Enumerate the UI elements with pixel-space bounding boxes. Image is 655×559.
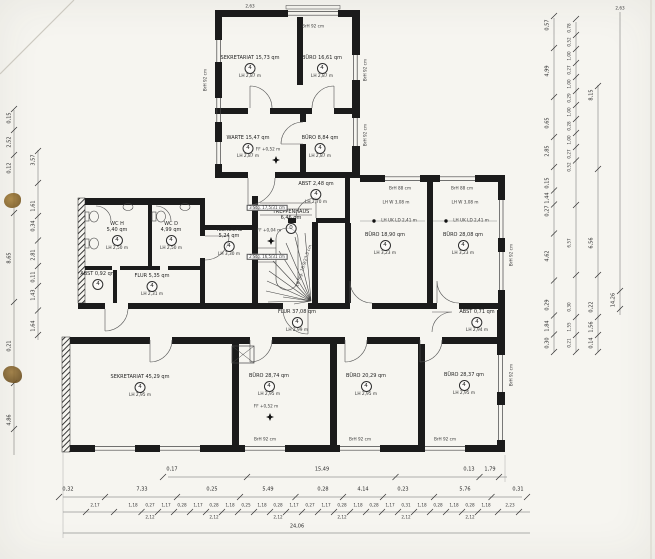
dim-label: 1,55 [568, 322, 573, 331]
storey-number-badge: 4 [92, 279, 103, 290]
room-label: WC D4,99 qm4LH 2,50 m [160, 222, 182, 252]
room-name: BÜRO 16,61 qm [302, 56, 342, 62]
dim-label: 0,52 [568, 37, 573, 46]
dim-label: 2,17 [90, 504, 99, 509]
storey-number-badge: 4 [242, 143, 253, 154]
dim-label: 1,18 [353, 504, 362, 509]
dim-label: 0,28 [273, 504, 282, 509]
room-label: BÜRO 28,74 qm4LH 2,95 m [249, 374, 289, 398]
dim-label: 6,56 [589, 237, 595, 248]
dim-label: 2,81 [31, 249, 37, 260]
storey-number-badge: 4 [166, 235, 177, 246]
dim-label: 2,12 [337, 516, 346, 521]
room-label: BÜRO 16,61 qm4LH 2,87 m [302, 56, 342, 80]
dim-label: 0,12 [7, 162, 13, 173]
dim-label: 3,57 [31, 154, 37, 165]
dim-label: 2,23 [505, 504, 514, 509]
dim-label: 0,28 [177, 504, 186, 509]
dim-label: 1,79 [484, 467, 495, 473]
dim-label: 0,30 [568, 302, 573, 311]
dim-label: 1,84 [545, 320, 551, 331]
dim-label: 0,22 [589, 301, 595, 312]
room-label: BÜRO 18,90 qm4LH 3,23 m [365, 233, 405, 257]
room-label: SEKRETARIAT 45,29 qm4LH 2,95 m [111, 375, 170, 399]
annotation-label: BrH 92 cm [364, 124, 369, 146]
dim-label: 1,18 [417, 504, 426, 509]
dim-label: 1,18 [449, 504, 458, 509]
room-label: ABST 2,48 qm4LH 2,70 m [298, 182, 333, 206]
room-label: TEEKÜCHE5,24 qm4LH 3,30 m [216, 228, 243, 258]
annotation-label: 2 Stg. 16,5/31 cm [247, 254, 288, 260]
clear-height-label: LH 2,50 m [106, 247, 128, 252]
dim-label: 2,12 [273, 516, 282, 521]
clear-height-label: LH 2,99 m [278, 329, 316, 334]
dim-label: 15,49 [315, 467, 329, 473]
room-name: BÜRO 28,74 qm [249, 374, 289, 380]
room-label: WC H5,40 qm4LH 2,50 m [106, 222, 128, 252]
room-name: BÜRO 28,37 qm [444, 373, 484, 379]
annotation-label: BrH 92 cm [434, 438, 456, 443]
dim-label: 0,14 [589, 337, 595, 348]
dim-label: 0,27 [145, 504, 154, 509]
dim-label: 1,00 [568, 51, 573, 60]
storey-number-badge: 4 [316, 63, 327, 74]
storey-number-badge: 4 [471, 317, 482, 328]
clear-height-label: LH 2,95 m [111, 394, 170, 399]
dim-label: 1,00 [568, 107, 573, 116]
room-label: FLUR 5,35 qm4LH 2,31 m [135, 274, 170, 298]
dim-label: 0,17 [166, 467, 177, 473]
room-label: BÜRO 28,08 qm4LH 3,23 m [443, 233, 483, 257]
dim-label: 2,85 [545, 145, 551, 156]
room-name: BÜRO 20,29 qm [346, 374, 386, 380]
room-name: BÜRO 28,08 qm [443, 233, 483, 239]
dim-label: 0,21 [7, 340, 13, 351]
dim-label: 8,65 [7, 252, 13, 263]
storey-number-badge: 4 [292, 317, 303, 328]
storey-number-badge: 4 [457, 240, 468, 251]
dim-label: 1,18 [257, 504, 266, 509]
room-name: SEKRETARIAT 15,73 qm [221, 56, 280, 62]
clear-height-label: LH 2,95 m [346, 393, 386, 398]
dim-label: 0,30 [545, 337, 551, 348]
annotation-label: BrH 92 cm [510, 364, 515, 386]
dim-label: 0,32 [62, 487, 73, 493]
dim-label: 0,65 [545, 117, 551, 128]
clear-height-label: LH 2,87 m [227, 155, 270, 160]
dim-label: 1,17 [385, 504, 394, 509]
room-name: ABST 0,92 qm [80, 272, 115, 278]
dim-label: 1,17 [289, 504, 298, 509]
annotation-label: BrH 92 cm [510, 244, 515, 266]
annotation-label: BrH 92 cm [364, 59, 369, 81]
dim-label: 0,52 [568, 162, 573, 171]
stain-mark [3, 366, 22, 383]
annotation-label: 18 Stg. 16,9/23,5 cm [295, 244, 313, 287]
annotation-label: LH UK LD 2,41 m [381, 219, 417, 224]
dim-label: 1,00 [568, 135, 573, 144]
annotation-label: LH W 3,08 m [451, 201, 478, 206]
dim-label: 0,28 [369, 504, 378, 509]
dim-label: 0,34 [31, 220, 37, 231]
dim-label: 0,28 [433, 504, 442, 509]
annotation-label: FF +0,52 m [256, 148, 280, 153]
annotation-label: BrH 92 cm [204, 69, 209, 91]
annotation-label: FF +0,04 m [257, 229, 281, 234]
storey-number-badge: 4 [458, 380, 469, 391]
clear-height-label: LH 2,87 m [221, 75, 280, 80]
clear-height-label: LH 2,50 m [160, 247, 182, 252]
room-label: FLUR 37,08 qm4LH 2,99 m [278, 310, 316, 334]
dim-label: 4,62 [545, 250, 551, 261]
clear-height-label: LH 2,87 m [302, 75, 342, 80]
dim-label: 1,44 [545, 192, 551, 203]
annotation-label: 2,63 [245, 5, 254, 10]
storey-number-badge: 4 [360, 381, 371, 392]
dim-label: 0,13 [463, 467, 474, 473]
dim-label: 1,17 [161, 504, 170, 509]
dim-label: 0,29 [568, 93, 573, 102]
annotation-label: BrH 92 cm [302, 25, 324, 30]
room-label: BÜRO 8,84 qm4LH 2,87 m [302, 136, 339, 160]
dim-label: 0,28 [337, 504, 346, 509]
dim-label: 0,23 [397, 487, 408, 493]
dim-label: 0,29 [545, 299, 551, 310]
room-name: FLUR 37,08 qm [278, 310, 316, 316]
dim-label: 2,12 [145, 516, 154, 521]
annotation-label: BrH 92 cm [254, 438, 276, 443]
dim-label: 0,27 [568, 149, 573, 158]
dim-label: 8,15 [589, 89, 595, 100]
dim-label: 6,57 [568, 238, 573, 247]
clear-height-label: LH 2,95 m [249, 393, 289, 398]
dim-label: 0,25 [206, 487, 217, 493]
dim-label: 1,43 [31, 289, 37, 300]
dim-label: 4,14 [357, 487, 368, 493]
storey-number-badge: 4 [224, 241, 235, 252]
dim-label: 2,12 [465, 516, 474, 521]
clear-height-label: LH 2,70 m [298, 201, 333, 206]
scanned-floor-plan: SEKRETARIAT 15,73 qm4LH 2,87 mBÜRO 16,61… [0, 0, 655, 559]
annotation-label: LH UK LD 2,41 m [453, 219, 489, 224]
room-label: ABST 0,92 qm4 [80, 272, 115, 291]
stain-mark [4, 193, 21, 208]
dim-label: 0,78 [568, 23, 573, 32]
dim-label: 0,25 [241, 504, 250, 509]
dim-label: 1,17 [321, 504, 330, 509]
dim-label: 1,18 [225, 504, 234, 509]
storey-number-badge: 4 [135, 382, 146, 393]
dim-label: 0,28 [209, 504, 218, 509]
dim-label: 0,57 [545, 19, 551, 30]
dim-label: 0,27 [568, 65, 573, 74]
room-area: 5,24 qm [216, 234, 243, 240]
room-name: BÜRO 8,84 qm [302, 136, 339, 142]
dim-label: 0,15 [545, 177, 551, 188]
dim-label: 1,56 [589, 321, 595, 332]
storey-number-badge: 0 [285, 223, 296, 234]
room-label: BÜRO 28,37 qm4LH 2,95 m [444, 373, 484, 397]
annotation-label: BrH 88 cm [389, 187, 411, 192]
dim-label: 2,52 [7, 136, 13, 147]
dim-label: 0,28 [465, 504, 474, 509]
dim-label: 1,17 [193, 504, 202, 509]
storey-number-badge: 4 [379, 240, 390, 251]
dim-label: 0,15 [7, 112, 13, 123]
dim-label: 0,31 [512, 487, 523, 493]
annotation-label: BrH 88 cm [451, 187, 473, 192]
annotation-label: LH W 3,08 m [382, 201, 409, 206]
storey-number-badge: 4 [263, 381, 274, 392]
dim-label: 2,12 [209, 516, 218, 521]
storey-number-badge: 4 [310, 189, 321, 200]
annotation-label: BrH 92 cm [349, 438, 371, 443]
dim-label: 0,28 [568, 121, 573, 130]
dim-label: 1,61 [31, 200, 37, 211]
clear-height-label: LH 3,30 m [216, 253, 243, 258]
dim-label: 1,18 [128, 504, 137, 509]
dim-label: 0,21 [568, 338, 573, 347]
room-name: SEKRETARIAT 45,29 qm [111, 375, 170, 381]
dim-label: 0,28 [317, 487, 328, 493]
dim-label: 4,99 [545, 65, 551, 76]
storey-number-badge: 4 [112, 235, 123, 246]
clear-height-label: LH 3,23 m [443, 252, 483, 257]
dim-label: 5,49 [262, 487, 273, 493]
dim-label: 2,12 [401, 516, 410, 521]
dim-label: 5,76 [459, 487, 470, 493]
dim-label: 4,86 [7, 414, 13, 425]
clear-height-label: LH 2,94 m [459, 329, 494, 334]
room-area: 5,40 qm [106, 228, 128, 234]
room-area: 6,46 qm [273, 216, 310, 222]
dim-label: 7,33 [136, 487, 147, 493]
clear-height-label: LH 2,95 m [444, 392, 484, 397]
storey-number-badge: 4 [314, 143, 325, 154]
dim-label: 0,11 [31, 271, 37, 282]
room-label: ABST 0,71 qm4LH 2,94 m [459, 310, 494, 334]
annotation-label: 2,63 [615, 7, 624, 12]
dim-label: 24,06 [290, 524, 304, 530]
annotation-label: FF +0,52 m [254, 405, 278, 410]
dim-label: 1,00 [568, 79, 573, 88]
room-name: ABST 0,71 qm [459, 310, 494, 316]
room-name: ABST 2,48 qm [298, 182, 333, 188]
dim-label: 14,26 [611, 293, 617, 307]
dim-label: 0,31 [401, 504, 410, 509]
labels-layer: SEKRETARIAT 15,73 qm4LH 2,87 mBÜRO 16,61… [0, 0, 655, 559]
storey-number-badge: 4 [147, 281, 158, 292]
room-name: FLUR 5,35 qm [135, 274, 170, 280]
dim-label: 1,18 [481, 504, 490, 509]
annotation-label: 3 Stg. 17,5/31 cm [247, 205, 288, 211]
room-area: 4,99 qm [160, 228, 182, 234]
room-label: SEKRETARIAT 15,73 qm4LH 2,87 m [221, 56, 280, 80]
clear-height-label: LH 3,23 m [365, 252, 405, 257]
dim-label: 0,27 [305, 504, 314, 509]
room-label: BÜRO 20,29 qm4LH 2,95 m [346, 374, 386, 398]
room-name: WARTE 15,47 qm [227, 136, 270, 142]
room-name: BÜRO 18,90 qm [365, 233, 405, 239]
dim-label: 1,64 [31, 320, 37, 331]
storey-number-badge: 4 [245, 63, 256, 74]
clear-height-label: LH 2,31 m [135, 293, 170, 298]
dim-label: 0,27 [545, 205, 551, 216]
clear-height-label: LH 2,87 m [302, 155, 339, 160]
